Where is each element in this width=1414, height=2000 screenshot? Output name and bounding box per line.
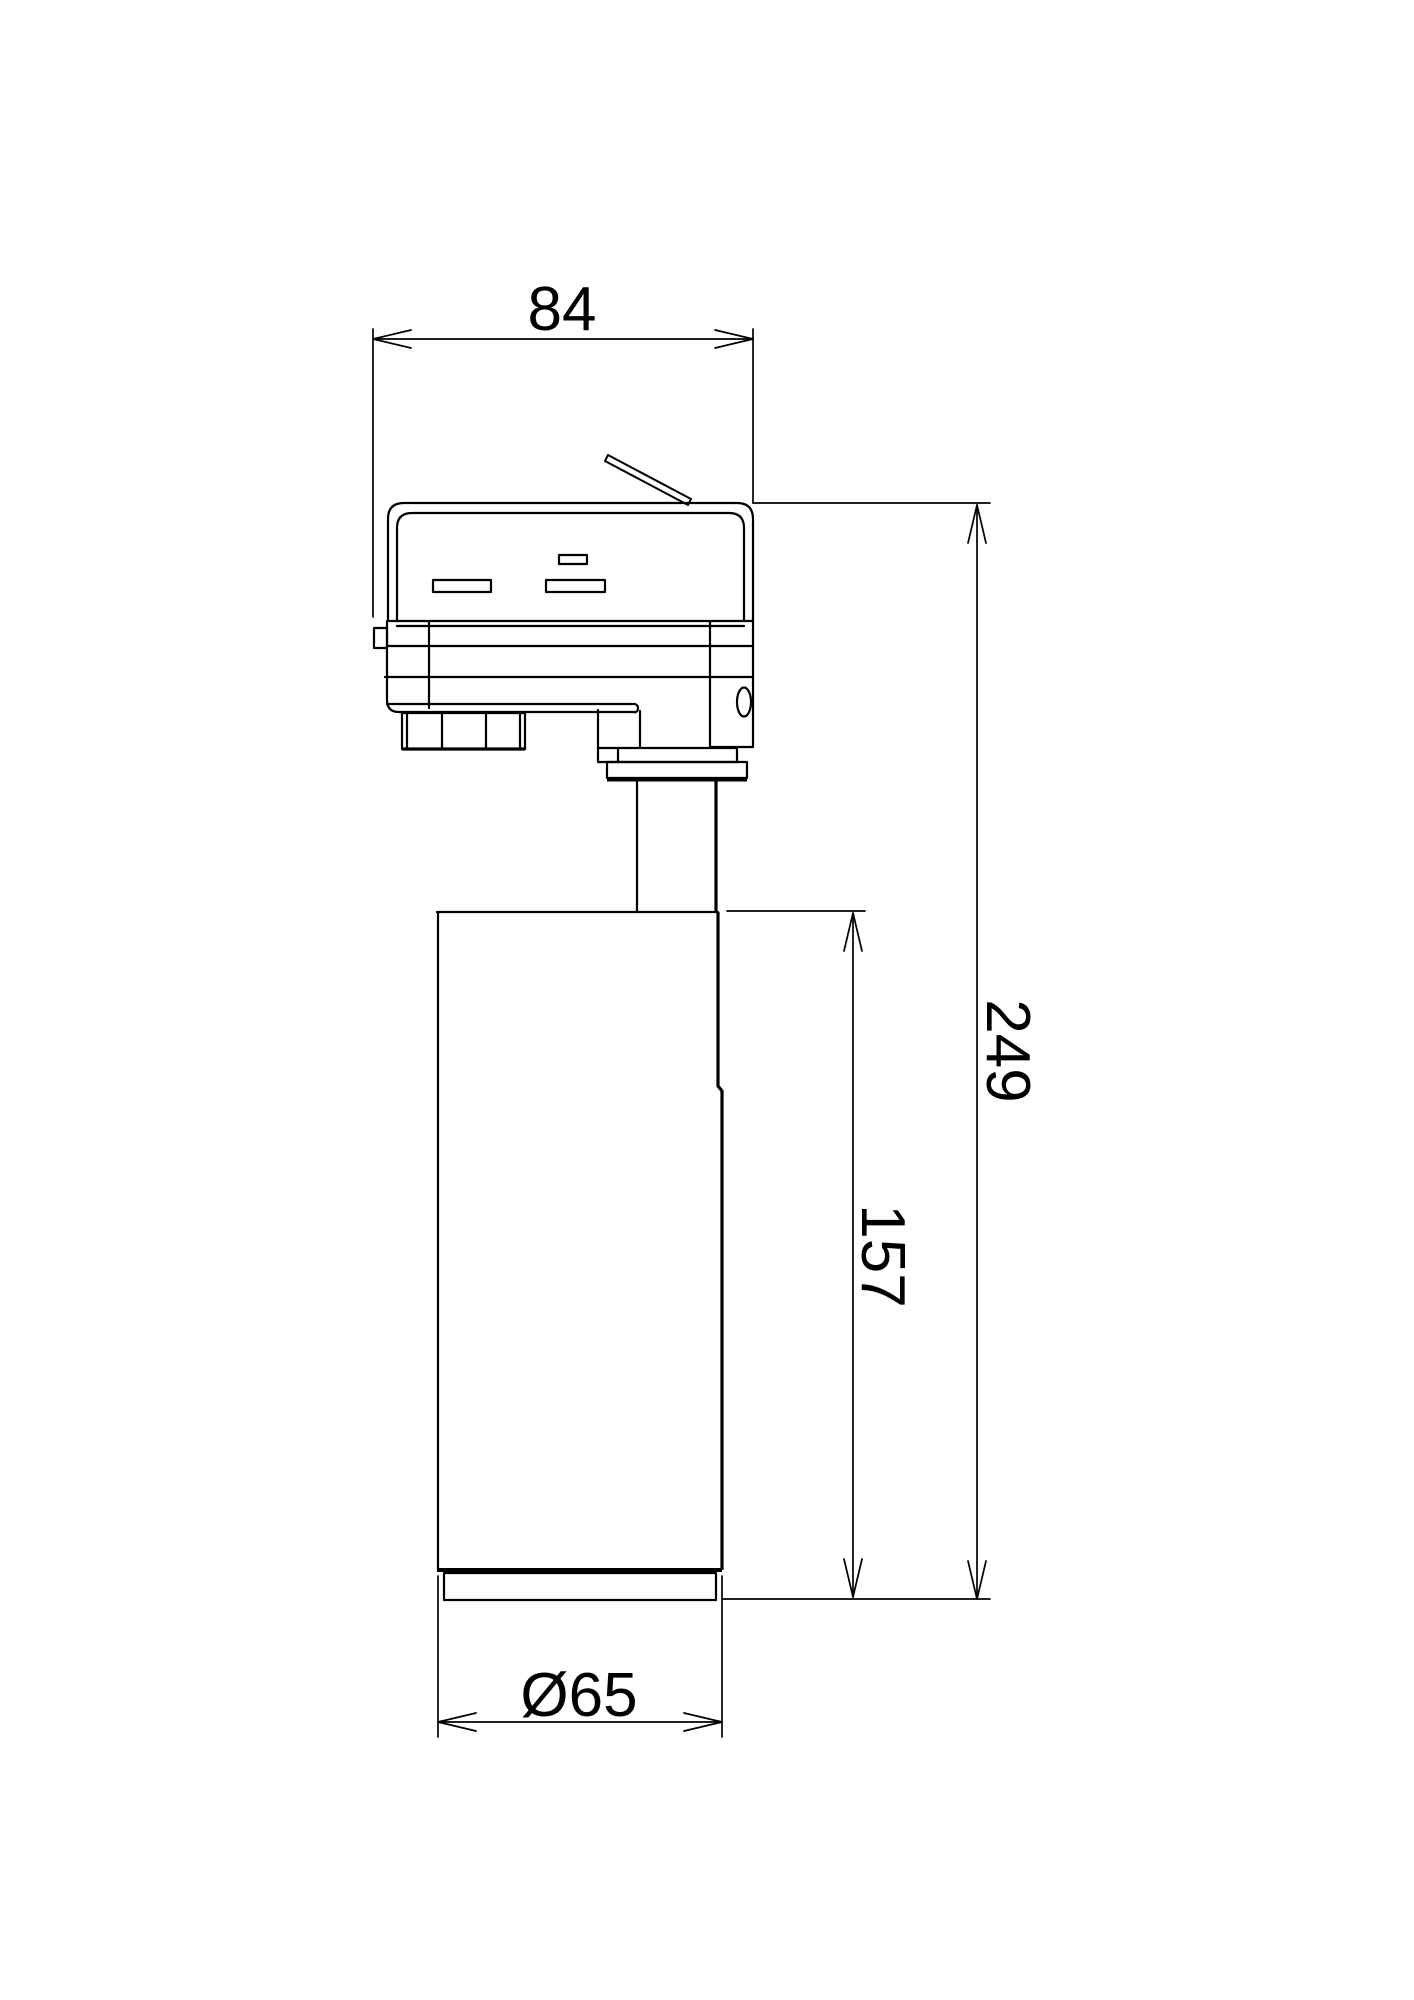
release-lever bbox=[605, 455, 691, 505]
body-right-edge bbox=[718, 912, 722, 1570]
front-bezel-ring bbox=[444, 1573, 716, 1600]
dim-label-body-height: 157 bbox=[848, 1204, 917, 1307]
drawing-canvas: 84 249 157 Ø65 bbox=[0, 0, 1414, 2000]
terminal-block bbox=[402, 713, 525, 749]
dimension-body-height: 157 bbox=[727, 911, 917, 1597]
adapter-outer-shell bbox=[388, 503, 753, 621]
track-adapter-head bbox=[388, 455, 753, 626]
bottom-lip-plate bbox=[387, 704, 638, 713]
adapter-mechanism-band bbox=[374, 621, 753, 749]
stem bbox=[637, 781, 716, 912]
contact-slot-left bbox=[433, 580, 491, 592]
terminal-block-dividers bbox=[407, 713, 520, 749]
dim-label-adapter-width: 84 bbox=[528, 275, 597, 344]
lamp-body bbox=[437, 912, 722, 1600]
dimension-overall-height: 249 bbox=[723, 503, 1042, 1599]
inspection-hole bbox=[737, 688, 751, 717]
band-left-edge bbox=[387, 621, 399, 712]
dim-label-body-diameter: Ø65 bbox=[520, 1661, 637, 1730]
side-tab bbox=[374, 628, 387, 648]
adapter-inner-shell bbox=[397, 513, 744, 621]
technical-drawing: 84 249 157 Ø65 bbox=[0, 0, 1414, 2000]
contact-slot-small bbox=[559, 555, 587, 564]
collar-flange bbox=[598, 710, 747, 780]
dimension-adapter-width: 84 bbox=[373, 275, 753, 617]
contact-slot-middle bbox=[546, 580, 605, 592]
flange bbox=[607, 762, 747, 778]
dim-label-overall-height: 249 bbox=[973, 999, 1042, 1102]
